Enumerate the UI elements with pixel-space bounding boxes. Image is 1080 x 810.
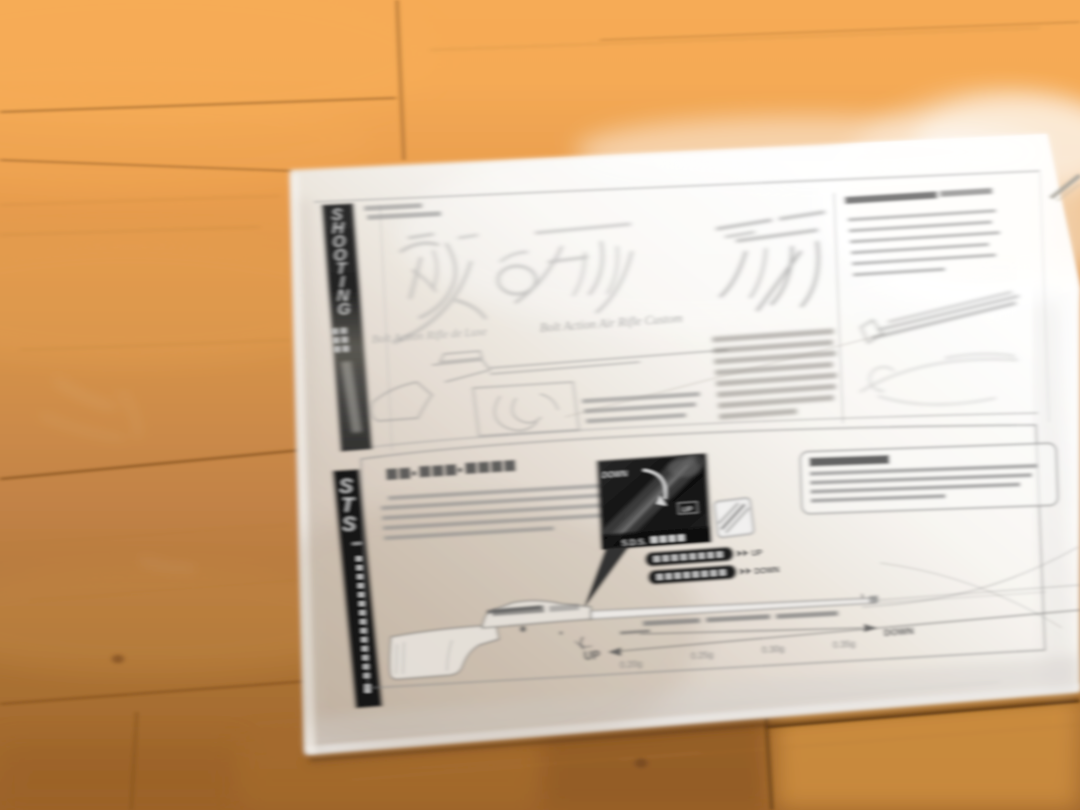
svg-text:0.30g: 0.30g	[761, 643, 784, 655]
svg-text:0.25g: 0.25g	[690, 649, 713, 661]
svg-text:0.20g: 0.20g	[619, 658, 642, 670]
svg-text:UP: UP	[682, 504, 694, 514]
svg-text:S.D.S.: S.D.S.	[621, 536, 646, 548]
svg-text:DOWN: DOWN	[754, 565, 780, 576]
svg-text:DOWN: DOWN	[883, 626, 914, 639]
svg-text:DOWN: DOWN	[602, 469, 628, 480]
svg-text:G: G	[338, 301, 351, 319]
svg-text:UP: UP	[583, 648, 601, 663]
svg-text:S: S	[342, 513, 356, 536]
svg-text:UP: UP	[751, 548, 763, 558]
svg-text:0.35g: 0.35g	[832, 638, 855, 650]
